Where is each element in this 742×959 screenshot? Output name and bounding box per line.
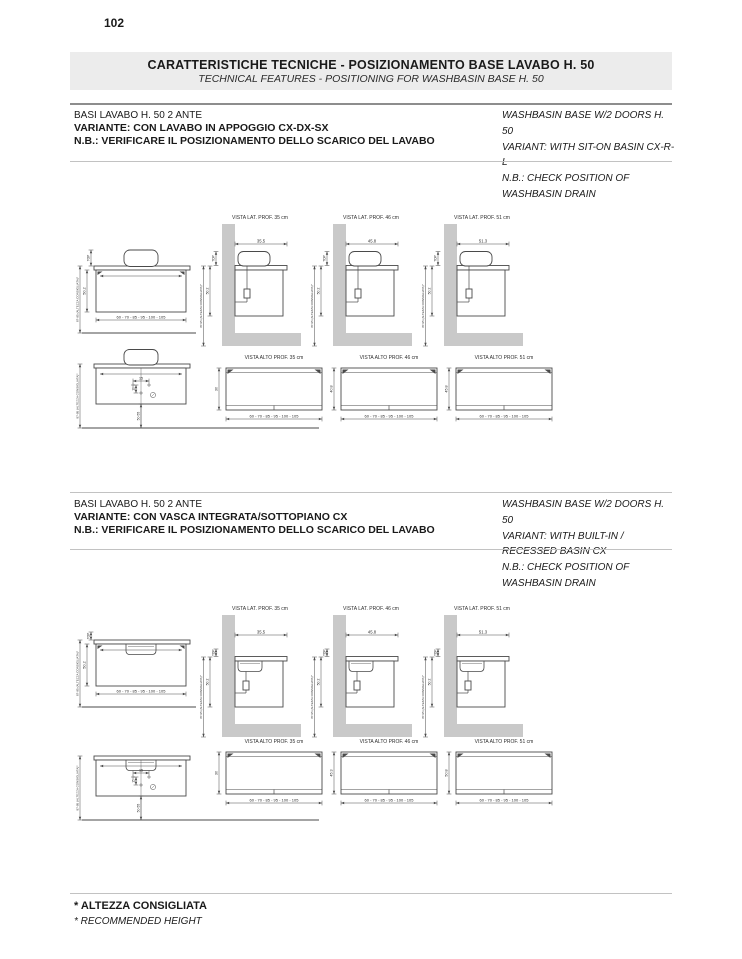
svg-text:50.8: 50.8 [445, 769, 449, 776]
heading-line: BASI LAVABO H. 50 2 ANTE [74, 498, 484, 511]
svg-text:10: 10 [132, 387, 136, 391]
svg-text:51.3: 51.3 [479, 238, 488, 243]
svg-text:51.3: 51.3 [479, 629, 488, 634]
svg-text:VISTA LAT. PROF. 35 cm: VISTA LAT. PROF. 35 cm [232, 606, 288, 612]
svg-text:60 - 70 - 85 - 95 - 100 - 105: 60 - 70 - 85 - 95 - 100 - 105 [250, 413, 300, 418]
svg-text:15: 15 [139, 376, 143, 380]
svg-text:50-55: 50-55 [137, 804, 141, 813]
technical-drawing: VISTA ALTO PROF. 51 cm45.860 - 70 - 85 -… [442, 352, 560, 430]
top-view-drawing-51: VISTA ALTO PROF. 51 cm50.860 - 70 - 85 -… [442, 736, 560, 814]
svg-text:45.8: 45.8 [445, 385, 449, 392]
svg-text:87-95 (ALTEZZA CONSIGLIATA)*: 87-95 (ALTEZZA CONSIGLIATA)* [76, 650, 80, 696]
svg-text:87-95 (ALTEZZA CONSIGLIATA)*: 87-95 (ALTEZZA CONSIGLIATA)* [311, 674, 314, 718]
heading-line: N.B.: VERIFICARE IL POSIZIONAMENTO DELLO… [74, 524, 484, 537]
front-elevation-drawing: 60 - 70 - 85 - 95 - 100 - 10550.2TOP87-9… [74, 614, 200, 714]
svg-text:VISTA ALTO PROF. 35 cm: VISTA ALTO PROF. 35 cm [245, 739, 304, 745]
technical-drawing: VISTA LAT. PROF. 51 cm51.3TOP50.287-95 (… [422, 603, 528, 743]
svg-text:60 - 70 - 85 - 95 - 100 - 105: 60 - 70 - 85 - 95 - 100 - 105 [365, 797, 415, 802]
svg-text:50.2: 50.2 [317, 288, 321, 295]
svg-text:87-95 (ALTEZZA CONSIGLIATA)*: 87-95 (ALTEZZA CONSIGLIATA)* [422, 674, 425, 718]
heading-line: VARIANTE: CON VASCA INTEGRATA/SOTTOPIANO… [74, 511, 484, 524]
page-title-band: CARATTERISTICHE TECNICHE - POSIZIONAMENT… [70, 52, 672, 90]
svg-text:60 - 70 - 85 - 95 - 100 - 105: 60 - 70 - 85 - 95 - 100 - 105 [117, 688, 167, 693]
svg-text:VISTA LAT. PROF. 51 cm: VISTA LAT. PROF. 51 cm [454, 606, 510, 612]
svg-text:50.2: 50.2 [83, 661, 87, 668]
page-title: CARATTERISTICHE TECNICHE - POSIZIONAMENT… [70, 52, 672, 72]
svg-text:VISTA LAT. PROF. 35 cm: VISTA LAT. PROF. 35 cm [232, 215, 288, 221]
svg-text:VISTA ALTO PROF. 46 cm: VISTA ALTO PROF. 46 cm [360, 739, 419, 745]
svg-text:TOP: TOP [212, 650, 216, 657]
lateral-view-drawing-51: VISTA LAT. PROF. 51 cm51.3TOP50.287-95 (… [422, 212, 528, 352]
svg-text:45.8: 45.8 [368, 629, 377, 634]
technical-drawing: VISTA LAT. PROF. 35 cm35.5TOP50.287-95 (… [200, 212, 306, 352]
heading-line: VARIANT: WITH SIT-ON BASIN CX-R-L [502, 140, 677, 172]
heading-line: VARIANT: WITH BUILT-IN / RECESSED BASIN … [502, 529, 677, 561]
heading-line: VARIANTE: CON LAVABO IN APPOGGIO CX-DX-S… [74, 122, 484, 135]
svg-text:60 - 70 - 85 - 95 - 100 - 105: 60 - 70 - 85 - 95 - 100 - 105 [117, 314, 167, 319]
heading-line: WASHBASIN BASE W/2 DOORS H. 50 [502, 497, 677, 529]
svg-text:50.2: 50.2 [428, 288, 432, 295]
section2-heading-english: WASHBASIN BASE W/2 DOORS H. 50 VARIANT: … [502, 497, 677, 592]
technical-drawing: 60 - 70 - 85 - 95 - 100 - 10550.2TOP87-9… [74, 614, 200, 714]
lateral-view-drawing-35: VISTA LAT. PROF. 35 cm35.5TOP50.287-95 (… [200, 212, 306, 352]
svg-text:VISTA LAT. PROF. 46 cm: VISTA LAT. PROF. 46 cm [343, 215, 399, 221]
svg-text:50.2: 50.2 [83, 287, 87, 294]
svg-text:87-95 (ALTEZZA CONSIGLIATA)*: 87-95 (ALTEZZA CONSIGLIATA)* [311, 283, 314, 327]
svg-text:87-95 (ALTEZZA CONSIGLIATA)*: 87-95 (ALTEZZA CONSIGLIATA)* [76, 373, 80, 419]
svg-text:VISTA ALTO PROF. 35 cm: VISTA ALTO PROF. 35 cm [245, 355, 304, 361]
section1-heading-italian: BASI LAVABO H. 50 2 ANTE VARIANTE: CON L… [74, 109, 484, 148]
svg-text:30: 30 [215, 387, 219, 391]
page-number: 102 [104, 16, 124, 30]
svg-text:VISTA ALTO PROF. 51 cm: VISTA ALTO PROF. 51 cm [475, 355, 534, 361]
divider [70, 161, 672, 162]
section2-heading-italian: BASI LAVABO H. 50 2 ANTE VARIANTE: CON V… [74, 498, 484, 537]
svg-text:TOP: TOP [434, 650, 438, 657]
page-subtitle: TECHNICAL FEATURES - POSITIONING FOR WAS… [70, 73, 672, 85]
svg-text:60 - 70 - 85 - 95 - 100 - 105: 60 - 70 - 85 - 95 - 100 - 105 [480, 797, 530, 802]
divider [70, 549, 672, 550]
svg-text:50.2: 50.2 [317, 679, 321, 686]
footnote-english: * RECOMMENDED HEIGHT [74, 916, 207, 927]
heading-line: N.B.: CHECK POSITION OF WASHBASIN DRAIN [502, 560, 677, 592]
lateral-view-drawing-35: VISTA LAT. PROF. 35 cm35.5TOP50.287-95 (… [200, 603, 306, 743]
svg-text:35.5: 35.5 [257, 238, 266, 243]
divider [70, 893, 672, 894]
technical-drawing: VISTA ALTO PROF. 46 cm45.360 - 70 - 85 -… [327, 736, 445, 814]
svg-text:60 - 70 - 85 - 95 - 100 - 105: 60 - 70 - 85 - 95 - 100 - 105 [250, 797, 300, 802]
footnote: * ALTEZZA CONSIGLIATA * RECOMMENDED HEIG… [74, 900, 207, 927]
svg-text:TOP: TOP [434, 255, 438, 262]
svg-text:50.2: 50.2 [428, 679, 432, 686]
svg-text:50.2: 50.2 [206, 288, 210, 295]
heading-line: N.B.: VERIFICARE IL POSIZIONAMENTO DELLO… [74, 135, 484, 148]
top-view-drawing-35: VISTA ALTO PROF. 35 cm3060 - 70 - 85 - 9… [212, 352, 330, 430]
technical-drawing: VISTA ALTO PROF. 35 cm3060 - 70 - 85 - 9… [212, 352, 330, 430]
technical-drawing: VISTA LAT. PROF. 46 cm45.8TOP50.287-95 (… [311, 603, 417, 743]
svg-text:87-95 (ALTEZZA CONSIGLIATA)*: 87-95 (ALTEZZA CONSIGLIATA)* [76, 276, 80, 322]
top-view-drawing-51: VISTA ALTO PROF. 51 cm45.860 - 70 - 85 -… [442, 352, 560, 430]
svg-text:VISTA LAT. PROF. 51 cm: VISTA LAT. PROF. 51 cm [454, 215, 510, 221]
svg-text:45.3: 45.3 [330, 769, 334, 776]
technical-drawing: 60 - 70 - 85 - 95 - 100 - 10550.2TOP87-9… [74, 240, 200, 340]
technical-drawing: VISTA LAT. PROF. 51 cm51.3TOP50.287-95 (… [422, 212, 528, 352]
technical-drawing: VISTA ALTO PROF. 51 cm50.860 - 70 - 85 -… [442, 736, 560, 814]
svg-text:87-95 (ALTEZZA CONSIGLIATA)*: 87-95 (ALTEZZA CONSIGLIATA)* [200, 283, 203, 327]
front-elevation-drawing: 60 - 70 - 85 - 95 - 100 - 10550.2TOP87-9… [74, 240, 200, 340]
svg-text:VISTA ALTO PROF. 51 cm: VISTA ALTO PROF. 51 cm [475, 739, 534, 745]
top-view-drawing-46: VISTA ALTO PROF. 46 cm40.860 - 70 - 85 -… [327, 352, 445, 430]
svg-text:60 - 70 - 85 - 95 - 100 - 105: 60 - 70 - 85 - 95 - 100 - 105 [480, 413, 530, 418]
svg-text:40.8: 40.8 [330, 385, 334, 392]
divider [70, 492, 672, 493]
svg-text:87-95 (ALTEZZA CONSIGLIATA)*: 87-95 (ALTEZZA CONSIGLIATA)* [200, 674, 203, 718]
svg-text:VISTA ALTO PROF. 46 cm: VISTA ALTO PROF. 46 cm [360, 355, 419, 361]
svg-text:TOP: TOP [87, 255, 91, 262]
heading-line: N.B.: CHECK POSITION OF WASHBASIN DRAIN [502, 171, 677, 203]
svg-text:TOP: TOP [323, 650, 327, 657]
svg-text:35.5: 35.5 [257, 629, 266, 634]
svg-text:60 - 70 - 85 - 95 - 100 - 105: 60 - 70 - 85 - 95 - 100 - 105 [365, 413, 415, 418]
divider [70, 103, 672, 105]
lateral-view-drawing-46: VISTA LAT. PROF. 46 cm45.8TOP50.287-95 (… [311, 212, 417, 352]
technical-drawing: VISTA ALTO PROF. 46 cm40.860 - 70 - 85 -… [327, 352, 445, 430]
top-view-drawing-35: VISTA ALTO PROF. 35 cm3060 - 70 - 85 - 9… [212, 736, 330, 814]
svg-text:50-55: 50-55 [137, 412, 141, 421]
technical-drawing: VISTA ALTO PROF. 35 cm3060 - 70 - 85 - 9… [212, 736, 330, 814]
svg-text:TOP: TOP [87, 633, 91, 640]
svg-text:87-95 (ALTEZZA CONSIGLIATA)*: 87-95 (ALTEZZA CONSIGLIATA)* [76, 765, 80, 811]
svg-text:TOP: TOP [212, 255, 216, 262]
svg-text:50.2: 50.2 [206, 679, 210, 686]
section1-heading-english: WASHBASIN BASE W/2 DOORS H. 50 VARIANT: … [502, 108, 677, 203]
svg-text:45.8: 45.8 [368, 238, 377, 243]
svg-text:TOP: TOP [323, 255, 327, 262]
lateral-view-drawing-51: VISTA LAT. PROF. 51 cm51.3TOP50.287-95 (… [422, 603, 528, 743]
svg-text:87-95 (ALTEZZA CONSIGLIATA)*: 87-95 (ALTEZZA CONSIGLIATA)* [422, 283, 425, 327]
top-view-drawing-46: VISTA ALTO PROF. 46 cm45.360 - 70 - 85 -… [327, 736, 445, 814]
technical-drawing: VISTA LAT. PROF. 35 cm35.5TOP50.287-95 (… [200, 603, 306, 743]
heading-line: BASI LAVABO H. 50 2 ANTE [74, 109, 484, 122]
lateral-view-drawing-46: VISTA LAT. PROF. 46 cm45.8TOP50.287-95 (… [311, 603, 417, 743]
svg-text:15: 15 [132, 779, 136, 783]
svg-text:VISTA LAT. PROF. 46 cm: VISTA LAT. PROF. 46 cm [343, 606, 399, 612]
svg-text:30: 30 [215, 771, 219, 775]
svg-text:15: 15 [139, 768, 143, 772]
technical-drawing: VISTA LAT. PROF. 46 cm45.8TOP50.287-95 (… [311, 212, 417, 352]
heading-line: WASHBASIN BASE W/2 DOORS H. 50 [502, 108, 677, 140]
footnote-italian: * ALTEZZA CONSIGLIATA [74, 900, 207, 912]
